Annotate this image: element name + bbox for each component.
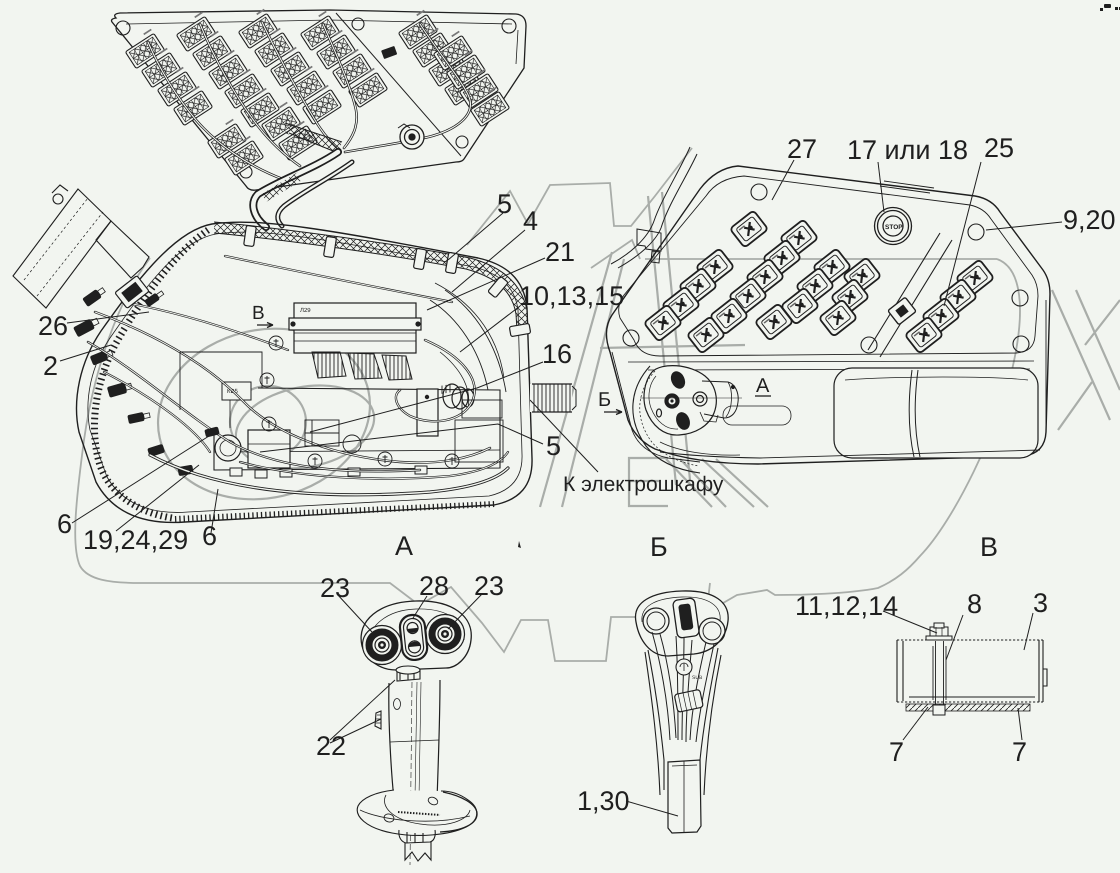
svg-text:11,12,14: 11,12,14 [795,591,898,621]
svg-text:21: 21 [545,237,575,267]
svg-text:4: 4 [523,206,538,236]
svg-text:6: 6 [57,509,72,539]
svg-text:3: 3 [1033,588,1048,618]
svg-text:23: 23 [474,571,504,601]
svg-text:8: 8 [967,589,982,619]
svg-text:В: В [980,532,998,562]
svg-text:6: 6 [202,521,217,551]
svg-text:2: 2 [43,351,58,381]
svg-text:7: 7 [889,737,904,767]
svg-text:22: 22 [316,731,346,761]
svg-text:STOP: STOP [885,224,903,231]
svg-text:10,13,15: 10,13,15 [519,281,624,311]
svg-text:17 или 18: 17 или 18 [847,135,968,165]
svg-text:В: В [252,303,265,324]
svg-text:25: 25 [984,133,1014,163]
svg-text:К электрошкафу: К электрошкафу [563,473,724,496]
svg-text:28: 28 [419,571,449,601]
svg-text:5: 5 [546,431,561,461]
svg-text:19,24,29: 19,24,29 [83,525,188,555]
svg-text:1,30: 1,30 [577,786,630,816]
svg-text:А: А [395,531,413,561]
svg-text:7: 7 [1012,737,1027,767]
svg-text:16: 16 [542,339,572,369]
svg-text:А: А [756,375,770,397]
svg-text:23: 23 [320,573,350,603]
svg-text:Б: Б [650,532,668,562]
svg-text:SUB: SUB [692,675,703,681]
svg-text:27: 27 [787,134,817,164]
svg-text:5: 5 [497,189,512,219]
svg-text:9,20: 9,20 [1063,205,1116,235]
svg-text:Л29: Л29 [300,307,311,314]
svg-text:Б: Б [598,389,611,411]
svg-text:26: 26 [38,311,68,341]
